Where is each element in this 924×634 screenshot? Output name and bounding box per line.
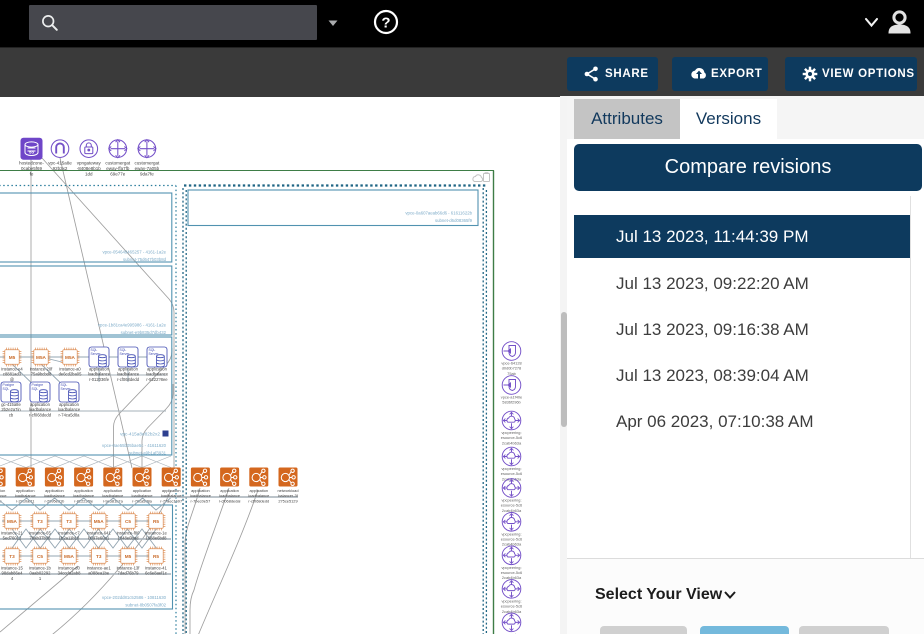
svg-text:r-cf068dedd: r-cf068dedd: [117, 377, 140, 382]
svg-text:subnet-d6d08365f9: subnet-d6d08365f9: [435, 218, 473, 223]
svg-text:r-cf068dedal: r-cf068dedal: [219, 498, 241, 503]
svg-text:subnet-e9b835d7db432: subnet-e9b835d7db432: [121, 330, 167, 335]
svg-text:1b2a11b18: 1b2a11b18: [59, 536, 80, 541]
svg-text:r-77aec1b97: r-77aec1b97: [160, 498, 182, 503]
svg-text:subnet-75d647b03b8d: subnet-75d647b03b8d: [123, 257, 167, 262]
svg-text:75a9bcbd8: 75a9bcbd8: [31, 372, 52, 377]
svg-text:92b2x2: 92b2x2: [53, 166, 68, 171]
svg-text:275ce5129: 275ce5129: [278, 498, 297, 503]
svg-text:vpc-415a8e82b2x2: vpc-415a8e82b2x2: [120, 432, 160, 437]
svg-text:SQL: SQL: [3, 387, 10, 391]
svg-text:R5: R5: [153, 554, 159, 559]
svg-text:M5A: M5A: [94, 519, 105, 524]
svg-text:hostedzone-: hostedzone-: [19, 161, 44, 166]
svg-text:vpce-202dd81c52586 - 10811630: vpce-202dd81c52586 - 10811630: [102, 595, 167, 600]
svg-text:69e77e: 69e77e: [110, 172, 126, 177]
svg-text:M5: M5: [9, 355, 16, 360]
svg-text:r-9e581b7a: r-9e581b7a: [103, 498, 124, 503]
svg-text:r-78ca5d8a: r-78ca5d8a: [132, 498, 153, 503]
svg-text:eway-ffa7fb: eway-ffa7fb: [106, 166, 130, 171]
svg-text:T3: T3: [9, 554, 15, 559]
svg-text:vpce-1b81ca4e995986 - 4161-1a2: vpce-1b81ca4e995986 - 4161-1a2e: [98, 323, 167, 328]
svg-text:vpc-415a8e: vpc-415a8e: [48, 161, 72, 166]
svg-text:5836f296b: 5836f296b: [502, 400, 520, 405]
svg-text:vpce-054649465257 - 4161-1a2e: vpce-054649465257 - 4161-1a2e: [102, 250, 166, 255]
svg-text:fe: fe: [30, 172, 34, 177]
svg-text:C5: C5: [37, 554, 43, 559]
svg-text:78ab37b38: 78ab37b38: [30, 536, 52, 541]
svg-text:M5A: M5A: [36, 355, 47, 360]
svg-text:customergat: customergat: [135, 161, 161, 166]
svg-text:r-5222?8ee: r-5222?8ee: [146, 377, 168, 382]
svg-text:r-cf068dedd: r-cf068dedd: [29, 412, 52, 417]
svg-text:vpngateway: vpngateway: [77, 161, 102, 166]
svg-text:vpce-0a607aeab66d6 - 61611622b: vpce-0a607aeab66d6 - 61611622b: [405, 211, 472, 216]
svg-text:r-74ca5d8a: r-74ca5d8a: [59, 412, 81, 417]
svg-text:M5A: M5A: [64, 554, 75, 559]
svg-text:75ab: 75ab: [507, 371, 516, 376]
svg-text:?: ?: [381, 15, 390, 32]
svg-text:a088ea1be: a088ea1be: [88, 571, 110, 576]
svg-text:9da7fe: 9da7fe: [140, 172, 154, 177]
svg-text:T3: T3: [96, 554, 102, 559]
svg-text:6c6e8aef1c: 6c6e8aef1c: [145, 571, 167, 576]
svg-text:eway-7a05b: eway-7a05b: [135, 166, 160, 171]
svg-text:vpce-0ae55b05bae5c - 41611620: vpce-0ae55b05bae5c - 41611620: [102, 443, 167, 448]
svg-text:@: @: [10, 377, 14, 382]
svg-text:subnet-8b0507fa3f02: subnet-8b0507fa3f02: [125, 603, 166, 608]
svg-text:C5: C5: [125, 519, 131, 524]
svg-text:1048e0bad: 1048e0bad: [118, 536, 140, 541]
svg-text:5ed76012: 5ed76012: [3, 536, 22, 541]
svg-text:r-7bec0e57: r-7bec0e57: [191, 498, 211, 503]
svg-text:1988e6bd8: 1988e6bd8: [146, 536, 168, 541]
svg-text:r-cf068dedd: r-cf068dedd: [248, 498, 269, 503]
svg-text:7dad76b79: 7dad76b79: [118, 571, 140, 576]
svg-text:2cab4b63a: 2cab4b63a: [502, 440, 522, 445]
svg-text:de6cd2ba05: de6cd2ba05: [59, 372, 82, 377]
svg-text:-8408e8b1b: -8408e8b1b: [77, 166, 102, 171]
svg-text:0cabe5f69: 0cabe5f69: [21, 166, 43, 171]
svg-text:r-012036fe: r-012036fe: [89, 377, 110, 382]
svg-text:R5: R5: [153, 519, 159, 524]
svg-text:subnet-a9b1af3931: subnet-a9b1af3931: [129, 451, 167, 456]
svg-text:M5A: M5A: [7, 519, 18, 524]
svg-text:T3: T3: [37, 519, 43, 524]
svg-text:r-2095e91b: r-2095e91b: [44, 498, 64, 503]
svg-text:53: 53: [29, 150, 35, 155]
svg-text:b097e60a1: b097e60a1: [88, 536, 110, 541]
svg-text:M5: M5: [125, 554, 132, 559]
svg-text:T3: T3: [66, 519, 72, 524]
svg-text:r-82223f8e: r-82223f8e: [74, 498, 93, 503]
svg-text:M5A: M5A: [65, 355, 76, 360]
svg-text:1dd: 1dd: [85, 172, 93, 177]
svg-text:34ccda2ab8: 34ccda2ab8: [58, 571, 81, 576]
svg-text:cb: cb: [9, 412, 14, 417]
svg-text:customergat: customergat: [105, 161, 131, 166]
svg-text:SQL: SQL: [32, 387, 39, 391]
